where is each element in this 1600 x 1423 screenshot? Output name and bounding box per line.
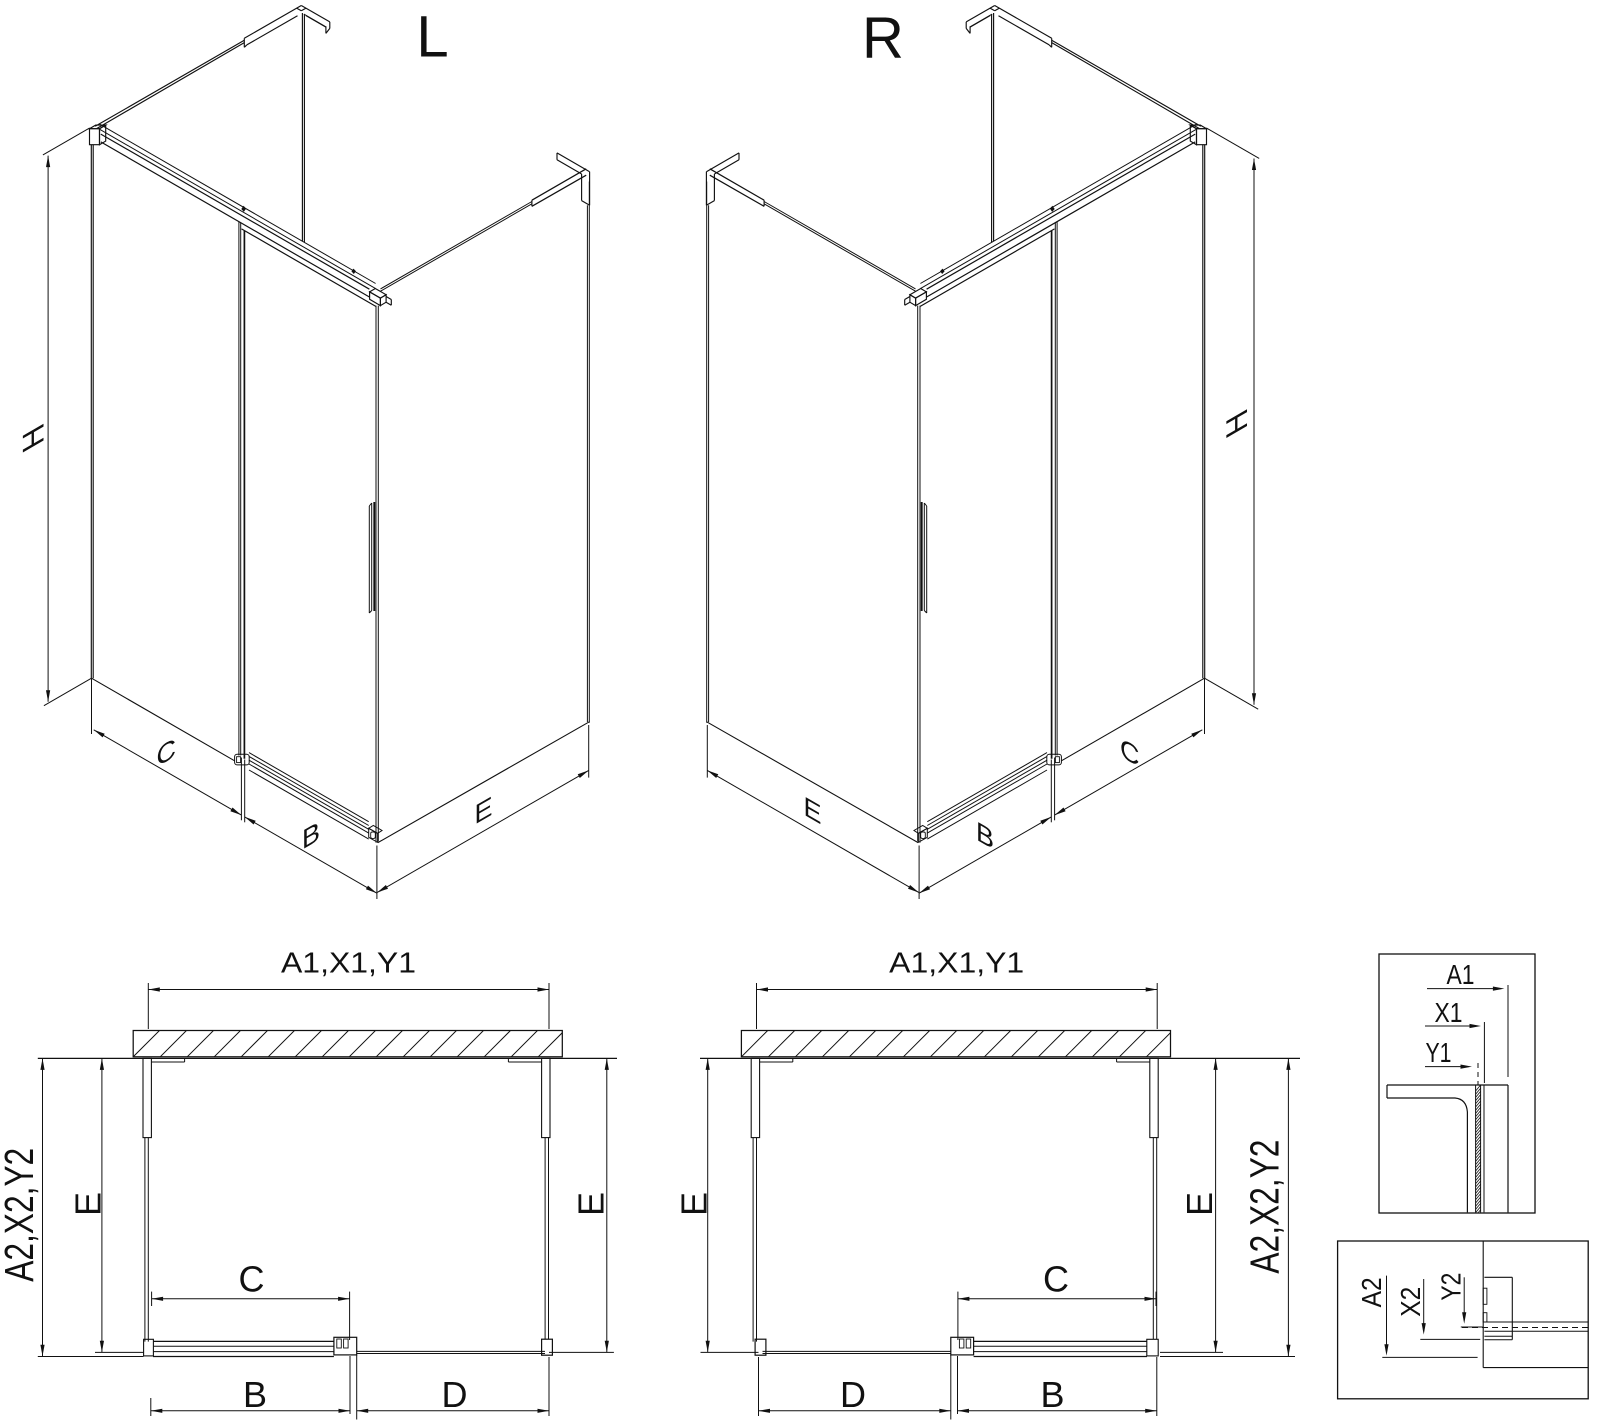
- svg-text:A1,X1,Y1: A1,X1,Y1: [889, 948, 1024, 980]
- svg-text:D: D: [442, 1374, 468, 1415]
- svg-text:C: C: [1043, 1259, 1069, 1300]
- svg-text:X2: X2: [1395, 1287, 1426, 1317]
- svg-text:L: L: [416, 4, 448, 69]
- svg-text:E: E: [1179, 1192, 1220, 1216]
- svg-text:E: E: [673, 1192, 714, 1216]
- svg-text:A1: A1: [1447, 959, 1475, 990]
- svg-text:E: E: [68, 1192, 109, 1216]
- svg-text:A2,X2,Y2: A2,X2,Y2: [1242, 1140, 1288, 1274]
- svg-text:Y1: Y1: [1426, 1037, 1452, 1068]
- svg-text:E: E: [571, 1192, 612, 1216]
- svg-text:R: R: [862, 6, 904, 71]
- svg-text:B: B: [243, 1374, 267, 1415]
- svg-text:A1,X1,Y1: A1,X1,Y1: [281, 948, 416, 980]
- svg-text:Y2: Y2: [1436, 1273, 1467, 1301]
- svg-text:A2: A2: [1356, 1277, 1387, 1307]
- svg-text:C: C: [239, 1259, 265, 1300]
- svg-text:X1: X1: [1435, 997, 1463, 1028]
- svg-text:A2,X2,Y2: A2,X2,Y2: [0, 1148, 42, 1282]
- svg-text:B: B: [1040, 1374, 1064, 1415]
- svg-text:D: D: [840, 1374, 866, 1415]
